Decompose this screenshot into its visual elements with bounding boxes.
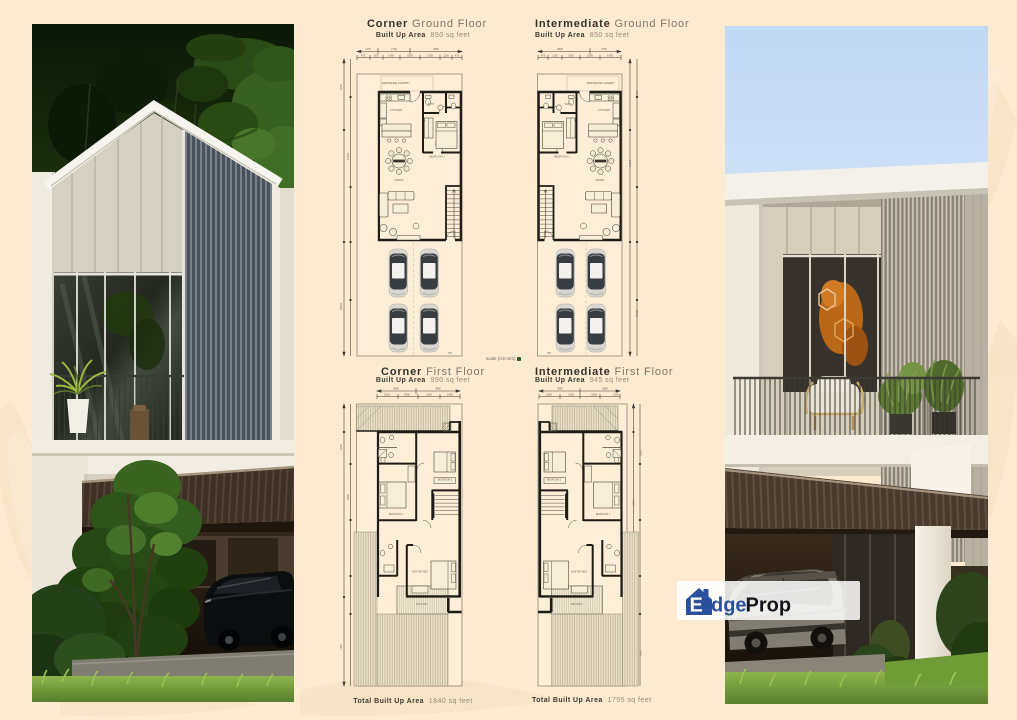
svg-text:BEDROOM 2: BEDROOM 2 [547,479,562,482]
svg-text:1100: 1100 [552,54,558,58]
svg-text:DINING: DINING [595,178,604,182]
svg-text:BATH: BATH [428,103,434,106]
svg-text:1800: 1800 [407,54,413,58]
svg-text:475: 475 [455,54,460,58]
svg-text:2050: 2050 [591,393,597,397]
svg-text:2050: 2050 [404,393,410,397]
svg-text:4500: 4500 [339,84,343,90]
svg-text:BEDROOM 1: BEDROOM 1 [554,155,570,159]
svg-text:dge: dge [711,595,747,617]
svg-text:1450: 1450 [607,54,613,58]
svg-text:BALCONY: BALCONY [571,603,583,606]
svg-text:2750: 2750 [601,47,607,51]
svg-text:BEDROOM 1: BEDROOM 1 [389,513,404,516]
svg-text:4500: 4500 [635,90,639,96]
svg-text:475: 475 [541,54,546,58]
svg-text:3880: 3880 [602,387,608,391]
svg-text:1980: 1980 [546,393,552,397]
svg-text:2000: 2000 [384,393,390,397]
svg-text:BEDROOM 1: BEDROOM 1 [596,513,611,516]
svg-text:2000: 2000 [613,393,619,397]
svg-text:Prop: Prop [746,595,792,617]
svg-text:1650: 1650 [427,54,433,58]
svg-text:3880: 3880 [393,387,399,391]
svg-text:3400: 3400 [346,494,350,500]
svg-text:1175: 1175 [365,47,371,51]
svg-text:MASTER BED: MASTER BED [571,571,587,574]
svg-text:12000: 12000 [628,160,632,168]
svg-text:1980: 1980 [447,393,453,397]
svg-text:ENTRANCE CANOPY: ENTRANCE CANOPY [382,81,410,85]
svg-text:MASTER BED: MASTER BED [412,571,428,574]
svg-text:28000: 28000 [339,302,343,310]
svg-text:28000: 28000 [635,310,639,318]
svg-text:KITCHEN: KITCHEN [390,108,402,112]
svg-text:BALCONY: BALCONY [416,603,428,606]
svg-text:750: 750 [547,352,552,355]
svg-text:7400: 7400 [339,644,343,650]
svg-text:BEDROOM 2: BEDROOM 2 [438,479,453,482]
svg-text:3800: 3800 [557,47,563,51]
svg-text:1450: 1450 [388,54,394,58]
svg-text:12000: 12000 [346,152,350,160]
svg-text:1100: 1100 [443,54,449,58]
svg-text:4200: 4200 [639,450,643,456]
svg-text:1900: 1900 [426,393,432,397]
svg-text:3880: 3880 [435,387,441,391]
svg-text:900: 900 [374,54,379,58]
svg-text:DINING: DINING [394,178,403,182]
svg-text:475: 475 [361,54,366,58]
svg-text:1650: 1650 [568,54,574,58]
svg-text:3800: 3800 [433,47,439,51]
svg-text:BEDROOM 1: BEDROOM 1 [429,155,445,159]
svg-text:2750: 2750 [391,47,397,51]
svg-text:3880: 3880 [557,387,563,391]
svg-text:4200: 4200 [339,444,343,450]
svg-text:7400: 7400 [639,650,643,656]
svg-text:1800: 1800 [587,54,593,58]
svg-text:BATH: BATH [565,103,571,106]
svg-text:E: E [690,595,703,617]
svg-text:ENTRANCE CANOPY: ENTRANCE CANOPY [587,81,615,85]
svg-text:3400: 3400 [632,500,636,506]
svg-text:1900: 1900 [568,393,574,397]
svg-text:KITCHEN: KITCHEN [598,108,610,112]
svg-text:750: 750 [448,352,453,355]
